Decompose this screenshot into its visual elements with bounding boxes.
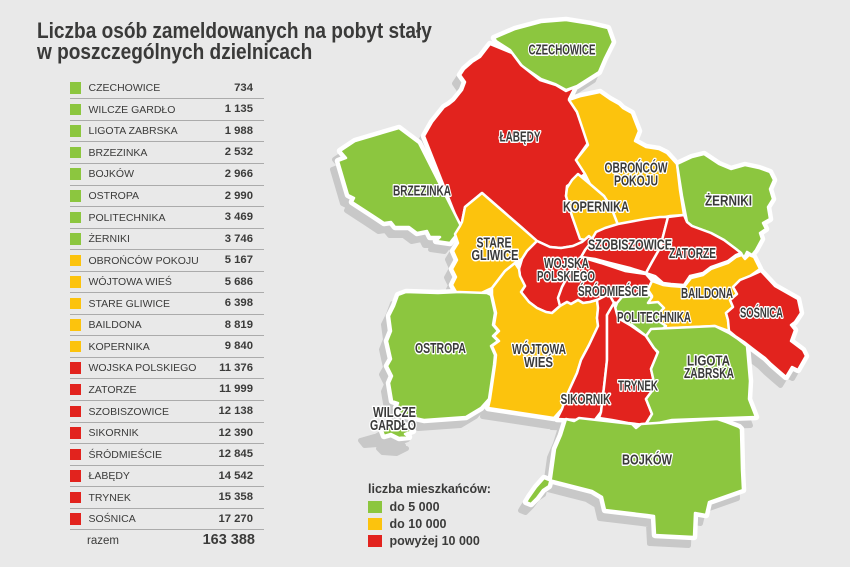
svg-text:GLIWICE: GLIWICE <box>472 248 519 264</box>
svg-text:WIEŚ: WIEŚ <box>524 353 553 371</box>
svg-text:BAILDONA: BAILDONA <box>681 286 733 302</box>
svg-text:OSTROPA: OSTROPA <box>415 341 466 357</box>
svg-text:SZOBISZOWICE: SZOBISZOWICE <box>588 238 672 254</box>
svg-text:POLITECHNIKA: POLITECHNIKA <box>617 310 691 326</box>
svg-text:BRZEZINKA: BRZEZINKA <box>393 184 451 200</box>
svg-text:GARDŁO: GARDŁO <box>370 418 416 434</box>
svg-text:SOŚNICA: SOŚNICA <box>740 304 783 322</box>
svg-text:KOPERNIKA: KOPERNIKA <box>563 200 629 216</box>
svg-text:CZECHOWICE: CZECHOWICE <box>529 43 596 59</box>
svg-text:SIKORNIK: SIKORNIK <box>561 392 611 408</box>
svg-text:POKOJU: POKOJU <box>614 174 658 190</box>
svg-text:ZABRSKA: ZABRSKA <box>684 366 734 382</box>
svg-text:ŚRÓDMIEŚCIE: ŚRÓDMIEŚCIE <box>578 282 648 300</box>
svg-text:ZATORZE: ZATORZE <box>669 246 716 262</box>
svg-text:TRYNEK: TRYNEK <box>618 379 658 395</box>
svg-text:ŁABĘDY: ŁABĘDY <box>500 130 541 146</box>
svg-text:POLSKIEGO: POLSKIEGO <box>537 269 595 285</box>
svg-text:ŻERNIKI: ŻERNIKI <box>705 193 752 210</box>
svg-text:BOJKÓW: BOJKÓW <box>622 451 672 469</box>
